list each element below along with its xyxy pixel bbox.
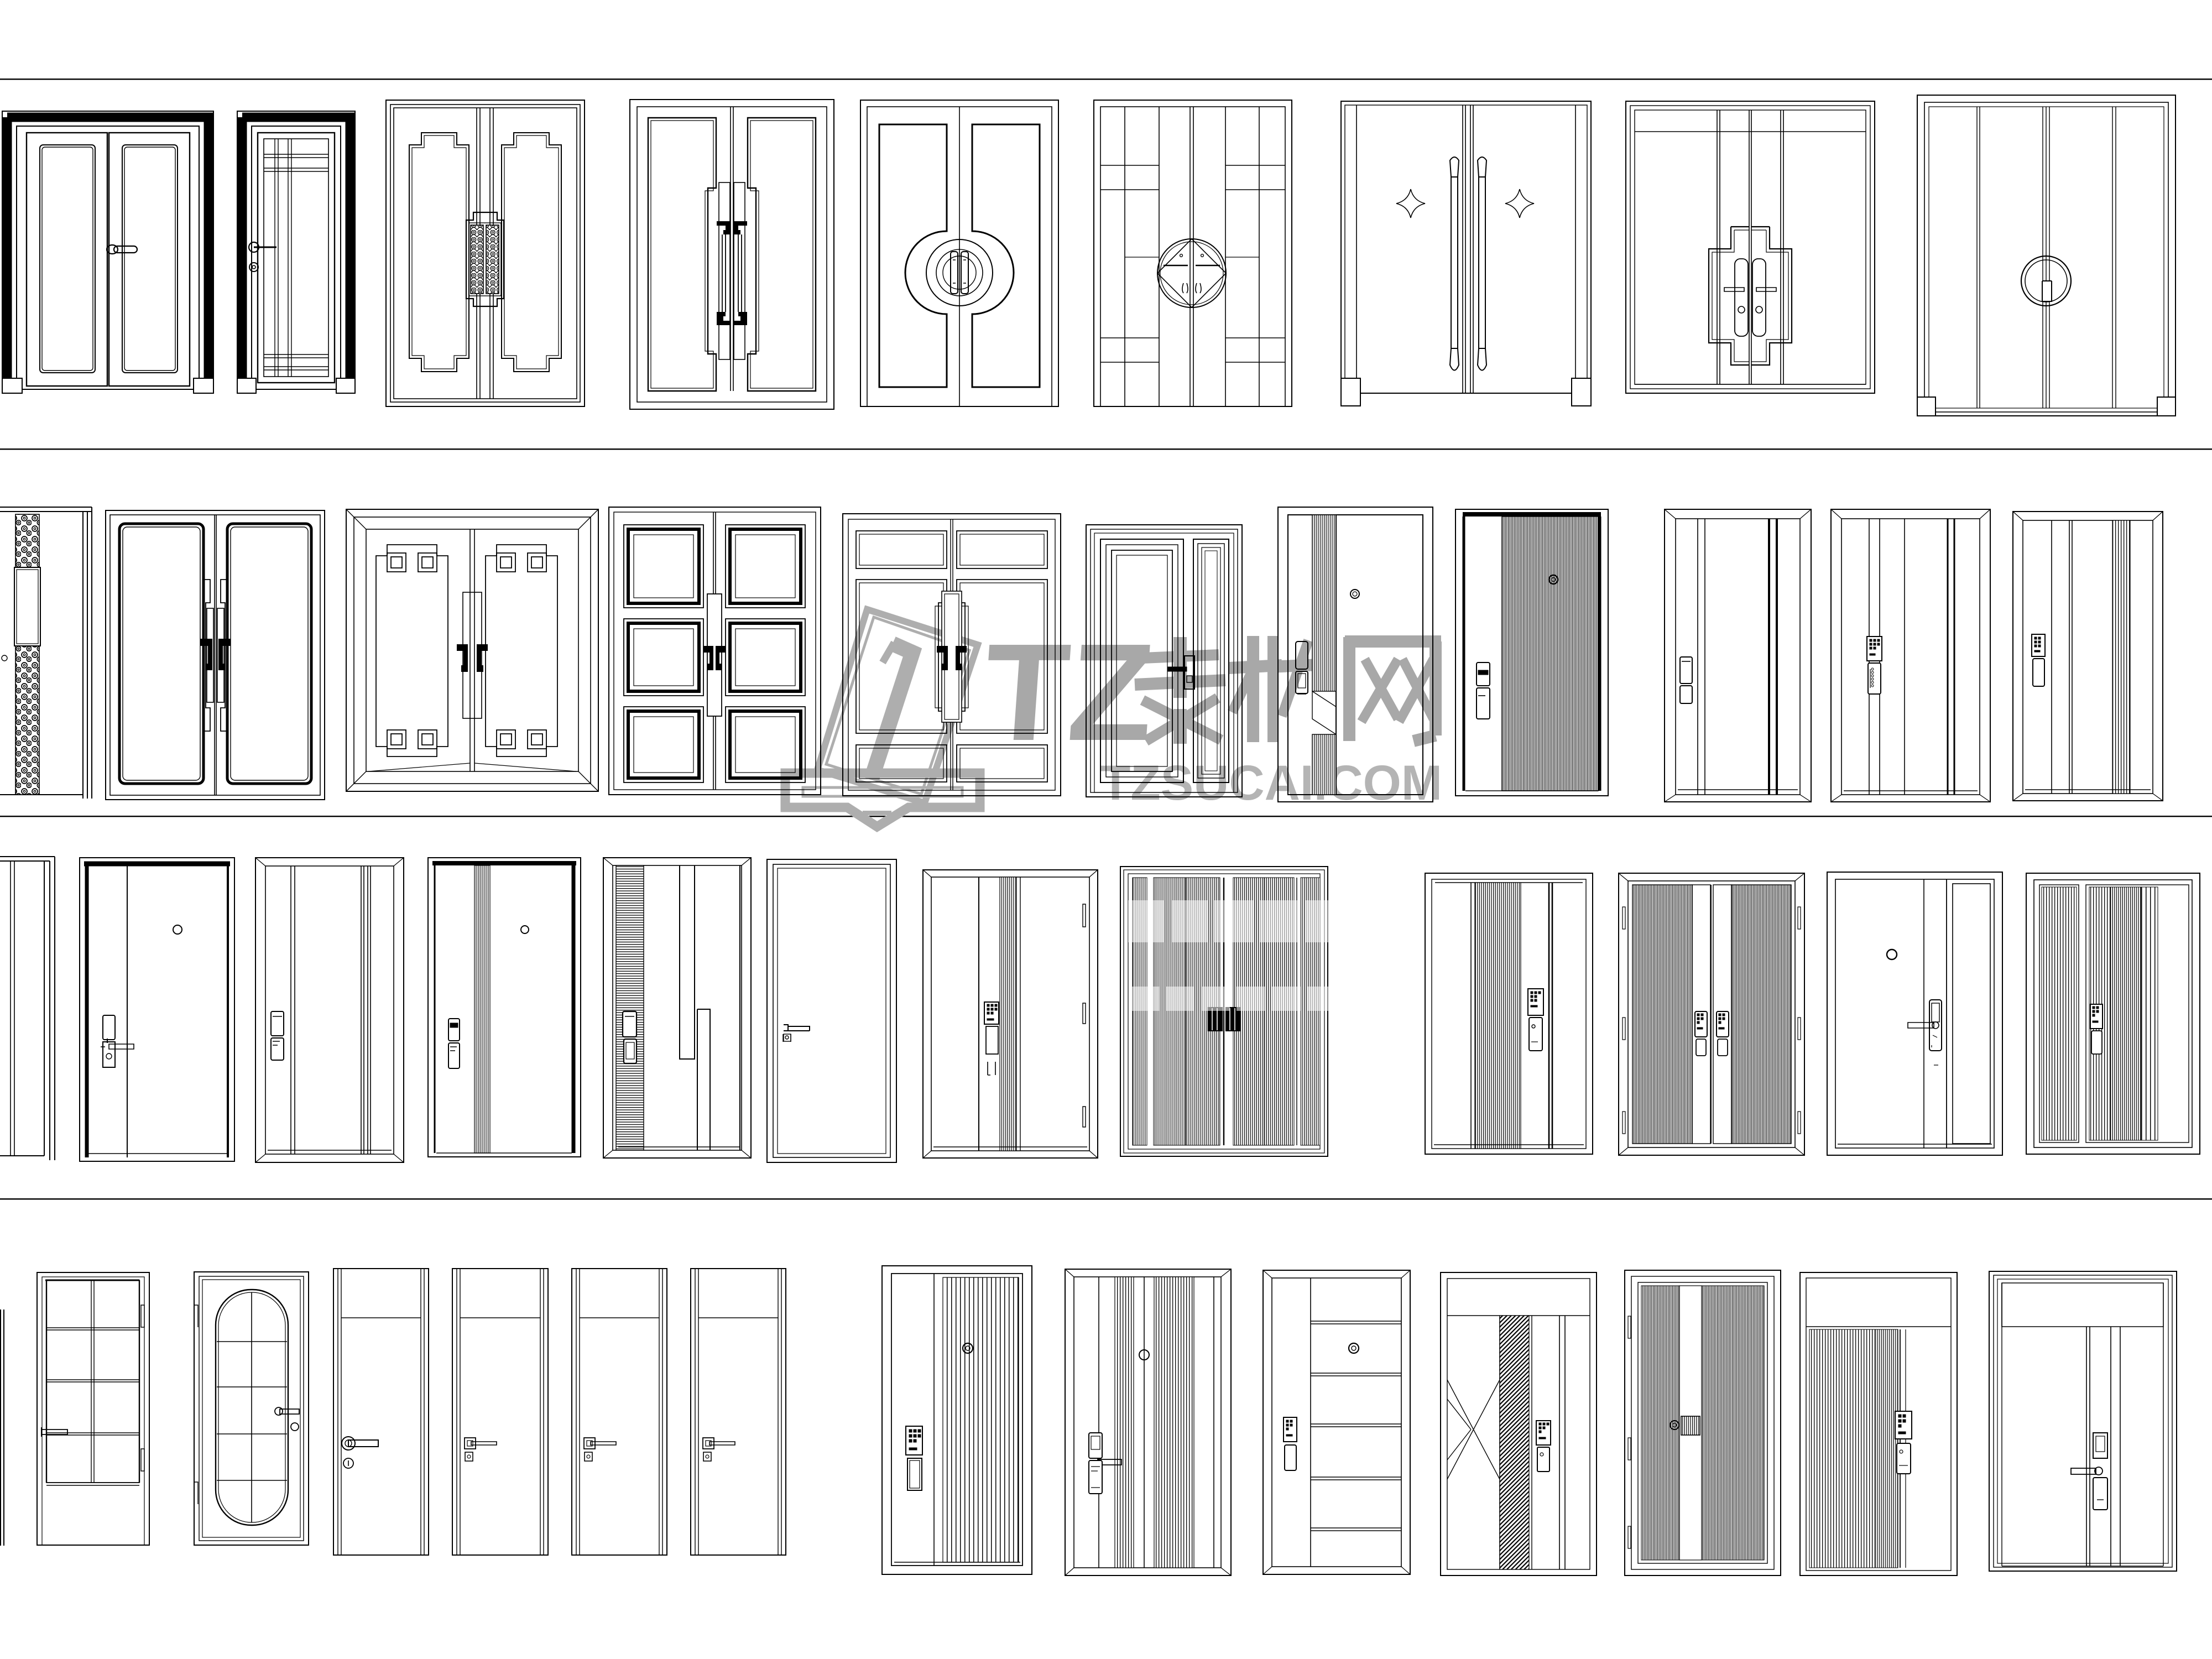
svg-text:TZ: TZ [979, 615, 1159, 770]
